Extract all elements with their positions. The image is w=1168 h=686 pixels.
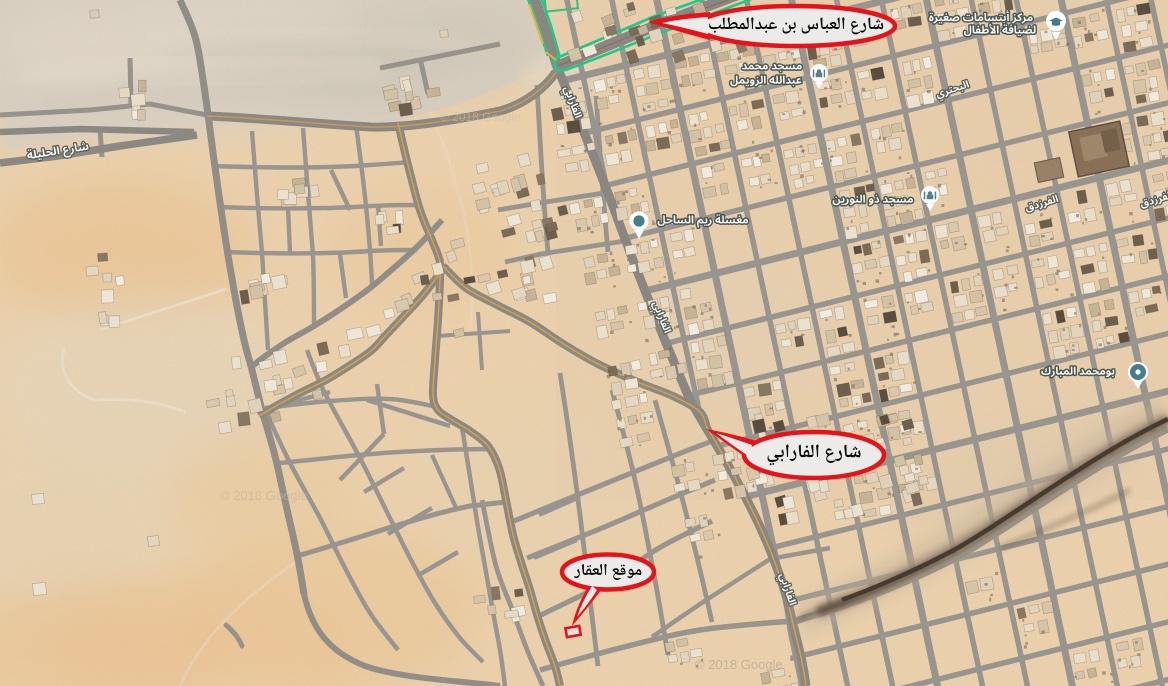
svg-text:© 2018 Google: © 2018 Google bbox=[220, 488, 308, 503]
svg-text:© 2018 Google: © 2018 Google bbox=[695, 657, 783, 672]
svg-text:© 2018 Google: © 2018 Google bbox=[440, 110, 521, 124]
